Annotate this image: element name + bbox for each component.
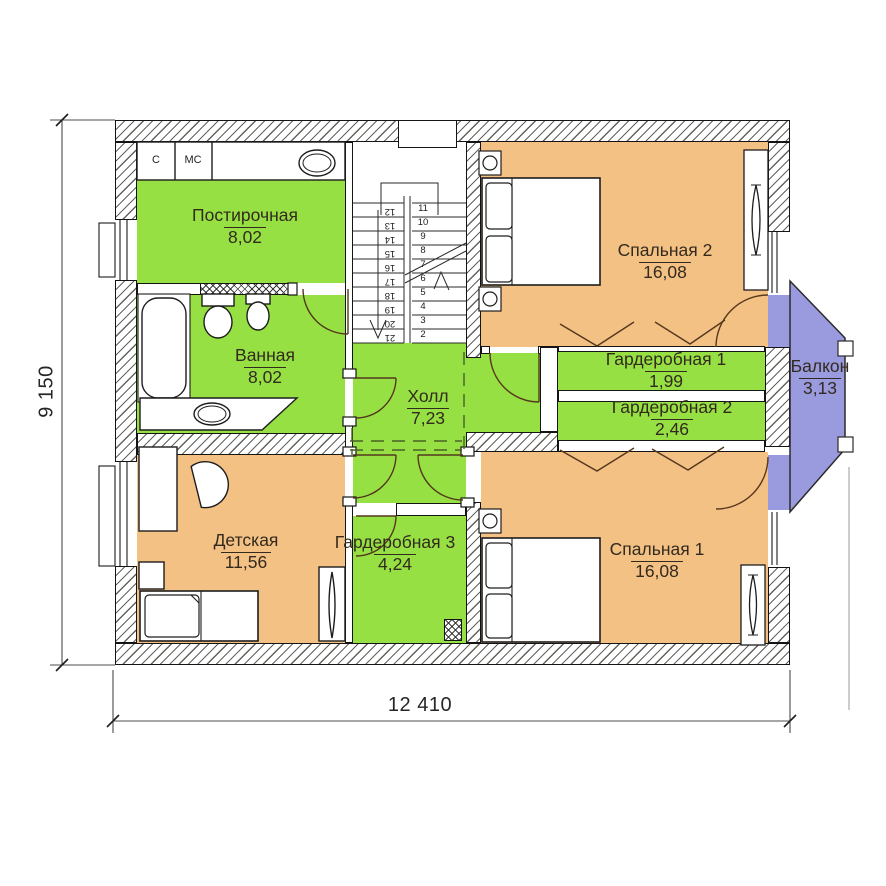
balcony-post <box>838 437 853 452</box>
room-name: Гардеробная 2 <box>582 398 762 418</box>
room-label-wardrobe3: Гардеробная 3 4,24 <box>305 533 485 575</box>
room-area: 7,23 <box>407 408 449 429</box>
room-name: Спальная 2 <box>575 241 755 261</box>
stairs-numbers-right: 111098765432 <box>410 202 436 342</box>
window-laundry <box>99 220 127 280</box>
room-label-laundry: Постирочная 8,02 <box>155 206 335 248</box>
stairs-numbers-left: 12131415161718192021 <box>378 204 402 344</box>
crosshatch-duct <box>444 619 462 641</box>
room-area: 1,99 <box>645 371 687 392</box>
room-area: 16,08 <box>631 561 683 582</box>
partition-w2-bedroom1 <box>558 440 765 452</box>
room-label-bedroom2: Спальная 2 16,08 <box>575 241 755 283</box>
crosshatch-laundry-wall <box>200 283 290 295</box>
dryer-label: МС <box>174 154 212 166</box>
wall-left-1 <box>115 142 137 220</box>
room-label-bedroom1: Спальная 1 16,08 <box>567 540 747 582</box>
room-area: 8,02 <box>244 367 286 388</box>
window-kids <box>99 462 127 566</box>
dim-line-vertical <box>50 120 115 665</box>
room-label-hall: Холл 7,23 <box>338 387 518 429</box>
room-name: Спальная 1 <box>567 540 747 560</box>
partition-corridor <box>540 347 558 432</box>
room-name: Ванная <box>175 346 355 366</box>
wall-left-3 <box>115 566 137 643</box>
floor-plan-canvas: Постирочная 8,02 Ванная 8,02 Холл 7,23 С… <box>0 0 886 886</box>
room-name: Гардеробная 3 <box>305 533 485 553</box>
room-label-bathroom: Ванная 8,02 <box>175 346 355 388</box>
balcony-post <box>838 341 853 356</box>
partition-wardrobe3-top <box>396 503 466 516</box>
wall-mid-horizontal <box>137 433 353 455</box>
partition-bedroom2-a <box>481 346 490 354</box>
room-label-balcony: Балкон 3,13 <box>780 357 860 399</box>
room-name: Холл <box>338 387 518 407</box>
room-area: 2,46 <box>651 419 693 440</box>
wall-stairs-right <box>466 142 481 358</box>
room-area: 8,02 <box>224 227 266 248</box>
room-name: Постирочная <box>155 206 335 226</box>
wall-right-1 <box>768 142 790 232</box>
wall-bottom <box>115 643 790 665</box>
room-name: Балкон <box>780 357 860 377</box>
wall-right-3 <box>768 567 790 643</box>
room-area: 4,24 <box>374 554 416 575</box>
partition-stairs-left-a <box>345 142 353 376</box>
room-area: 3,13 <box>799 378 841 399</box>
stairwell-niche <box>398 120 457 148</box>
dimension-vertical: 9 150 <box>36 357 59 427</box>
room-area: 11,56 <box>221 552 272 573</box>
room-area: 16,08 <box>639 262 691 283</box>
room-label-wardrobe1: Гардеробная 1 1,99 <box>576 350 756 392</box>
wall-left-2 <box>115 280 137 462</box>
wall-corridor-block <box>466 432 558 452</box>
room-name: Гардеробная 1 <box>576 350 756 370</box>
washer-label: С <box>137 154 175 166</box>
dimension-horizontal: 12 410 <box>350 694 490 717</box>
room-label-wardrobe2: Гардеробная 2 2,46 <box>582 398 762 440</box>
